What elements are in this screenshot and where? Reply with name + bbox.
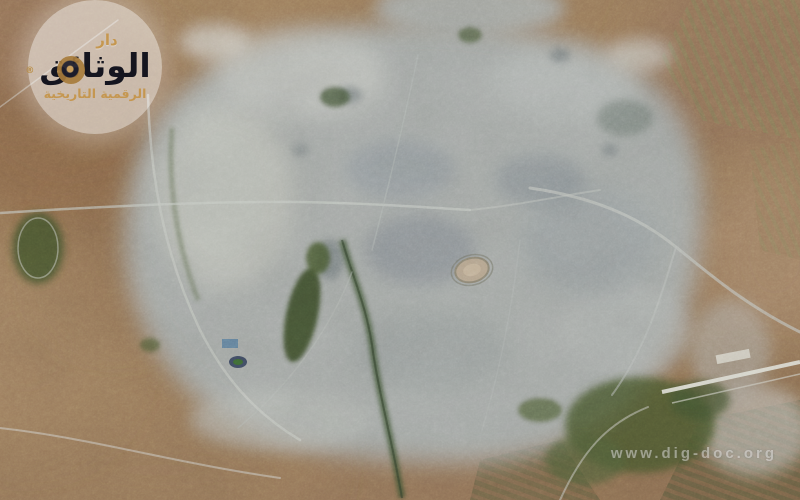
logo-word-sub: الرقمية التاريخية: [44, 88, 147, 101]
logo-emblem-ring-icon: [57, 56, 85, 84]
logo-badge: دار الوثائق ® الرقمية التاريخية: [28, 0, 162, 134]
logo-word-main: الوثائق ®: [39, 49, 150, 84]
satellite-map-view: دار الوثائق ® الرقمية التاريخية www.dig-…: [0, 0, 800, 500]
registered-mark: ®: [25, 67, 34, 76]
watermark-url: www.dig-doc.org: [611, 445, 777, 462]
